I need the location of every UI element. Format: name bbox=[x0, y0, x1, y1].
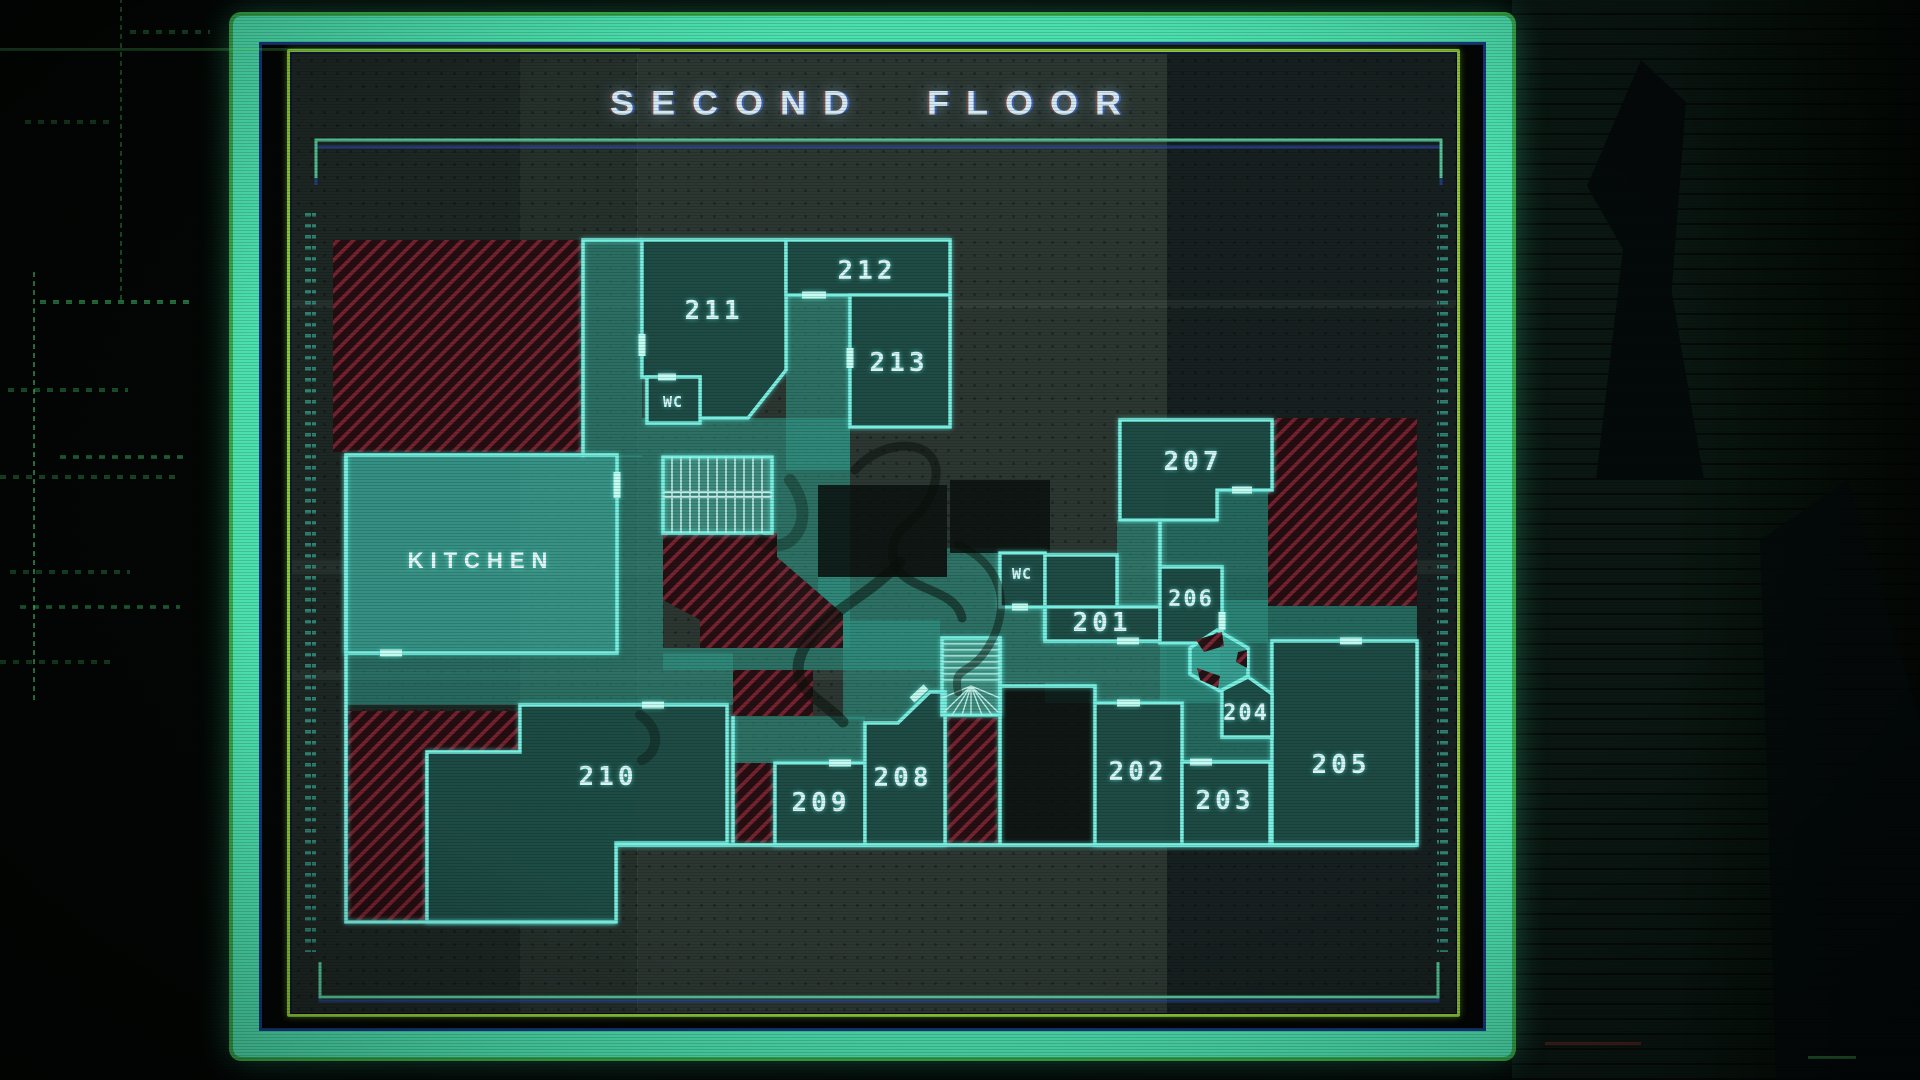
game-screen: 201 202 203 204 205 206 207 208 209 210 … bbox=[0, 0, 1920, 1080]
room-213-label: 213 bbox=[870, 348, 929, 378]
room-210-label: 210 bbox=[579, 762, 638, 792]
right-tick-column bbox=[1437, 212, 1448, 952]
room-204-label: 204 bbox=[1223, 701, 1269, 726]
blocked-area-east bbox=[1268, 418, 1417, 606]
wc-lower-label: WC bbox=[1012, 565, 1032, 583]
bg-red-artifact bbox=[1545, 1042, 1641, 1045]
kitchen-label: KITCHEN bbox=[408, 548, 555, 573]
room-alcove bbox=[1045, 555, 1117, 607]
room-212-label: 212 bbox=[838, 256, 897, 286]
room-208-label: 208 bbox=[874, 763, 933, 793]
staircase-lower bbox=[942, 638, 1000, 715]
floor-plan: 201 202 203 204 205 206 207 208 209 210 … bbox=[0, 0, 1920, 1080]
room-202-label: 202 bbox=[1109, 757, 1168, 787]
room-201-label: 201 bbox=[1073, 608, 1132, 638]
blocked-strip bbox=[947, 718, 997, 843]
bg-green-artifact bbox=[1808, 1056, 1856, 1059]
floor-title: SECOND FLOOR bbox=[292, 83, 1456, 123]
room-203-label: 203 bbox=[1196, 786, 1255, 816]
room-205-label: 205 bbox=[1312, 750, 1371, 780]
blocked-area-northwest bbox=[333, 240, 583, 452]
glitch-scanline bbox=[0, 48, 640, 51]
room-207-label: 207 bbox=[1164, 447, 1223, 477]
room-211-label: 211 bbox=[685, 296, 744, 326]
left-tick-column bbox=[305, 212, 316, 952]
room-205 bbox=[1272, 641, 1417, 845]
blocked-strip bbox=[733, 763, 775, 843]
room-209-label: 209 bbox=[792, 788, 851, 818]
staircase-upper bbox=[663, 457, 772, 533]
wc-upper-label: WC bbox=[663, 393, 683, 411]
room-206-label: 206 bbox=[1168, 587, 1214, 612]
